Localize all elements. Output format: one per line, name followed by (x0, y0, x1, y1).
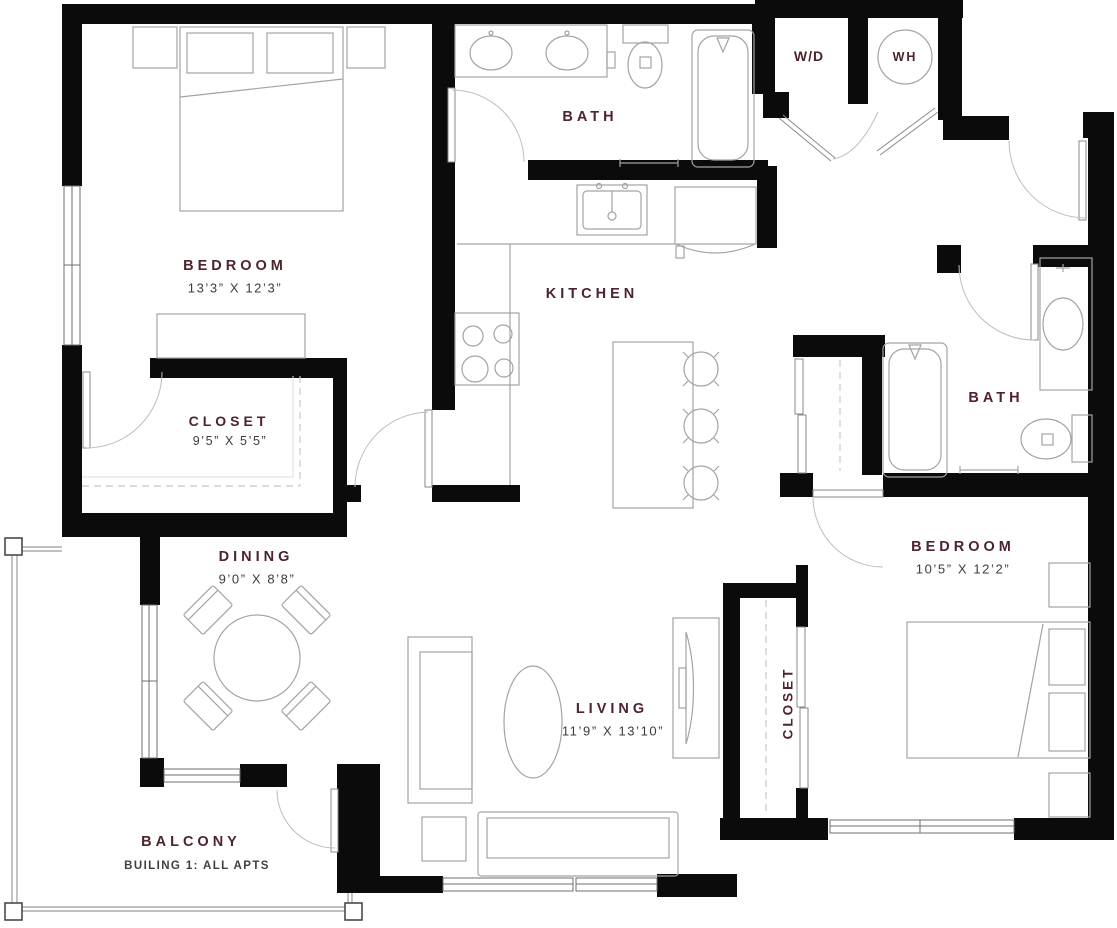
coffee-table (504, 666, 562, 778)
walls-layer (62, 0, 1114, 897)
tv-console (673, 618, 719, 758)
bath-2-fixtures (883, 258, 1092, 477)
kitchen-label: KITCHEN (546, 286, 638, 302)
kitchen-counters (457, 244, 675, 485)
living-label: LIVING (576, 701, 648, 717)
closet-2-sliding-door-1 (797, 627, 805, 707)
bath-1-fixtures (455, 25, 754, 167)
dining-dims: 9’0” X 8’8” (219, 572, 296, 587)
closet-2-sliding-door-2 (800, 708, 808, 788)
closet-1-door (83, 372, 90, 448)
bath-2-label: BATH (968, 390, 1023, 406)
bedroom-2-door (813, 490, 883, 497)
nightstand-1b (347, 27, 385, 68)
dining-set (183, 585, 330, 730)
bedroom-1-label: BEDROOM (183, 258, 287, 274)
bedroom-1-door (425, 410, 432, 487)
bed-1 (180, 27, 343, 211)
kitchen-sink (577, 184, 647, 236)
bed-2 (907, 622, 1090, 758)
bedroom-1-dims: 13’3” X 12’3” (188, 281, 283, 296)
balcony-label: BALCONY (141, 834, 241, 850)
floorplan-linework (0, 0, 1117, 928)
refrigerator (675, 187, 756, 258)
furniture-layer (133, 25, 1092, 876)
kitchen-island (613, 342, 719, 508)
dresser-1 (157, 314, 305, 358)
nightstand-1a (133, 27, 177, 68)
bath-2-door (1031, 264, 1038, 340)
floor-plan: BEDROOM 13’3” X 12’3” CLOSET 9’5” X 5’5”… (0, 0, 1117, 928)
bedroom-2-dims: 10’5” X 12’2” (916, 562, 1011, 577)
bath-1-label: BATH (562, 109, 617, 125)
entry-door (1079, 141, 1086, 220)
washer-dryer-door (779, 115, 835, 161)
water-heater-label: WH (893, 50, 918, 64)
pantry-sliding-door-1 (795, 359, 803, 414)
nightstand-2a (1049, 563, 1090, 607)
dining-label: DINING (219, 549, 294, 565)
balcony-door (331, 789, 338, 852)
closet-2-label: CLOSET (781, 667, 796, 740)
bath-1-door (448, 88, 455, 162)
nightstand-2b (1049, 773, 1090, 817)
balcony-note: BUILING 1: ALL APTS (124, 860, 270, 872)
water-heater-door (877, 108, 938, 155)
closet-1-dims: 9’5” X 5’5” (193, 434, 268, 448)
bedroom-2-label: BEDROOM (911, 539, 1015, 555)
living-dims: 11’9” X 13’10” (562, 724, 664, 739)
sofa (478, 812, 678, 876)
pantry-sliding-door-2 (798, 415, 806, 473)
washer-dryer-label: W/D (794, 48, 824, 64)
armchair (408, 637, 472, 803)
closet-1-label: CLOSET (189, 413, 270, 429)
side-table (422, 817, 466, 861)
